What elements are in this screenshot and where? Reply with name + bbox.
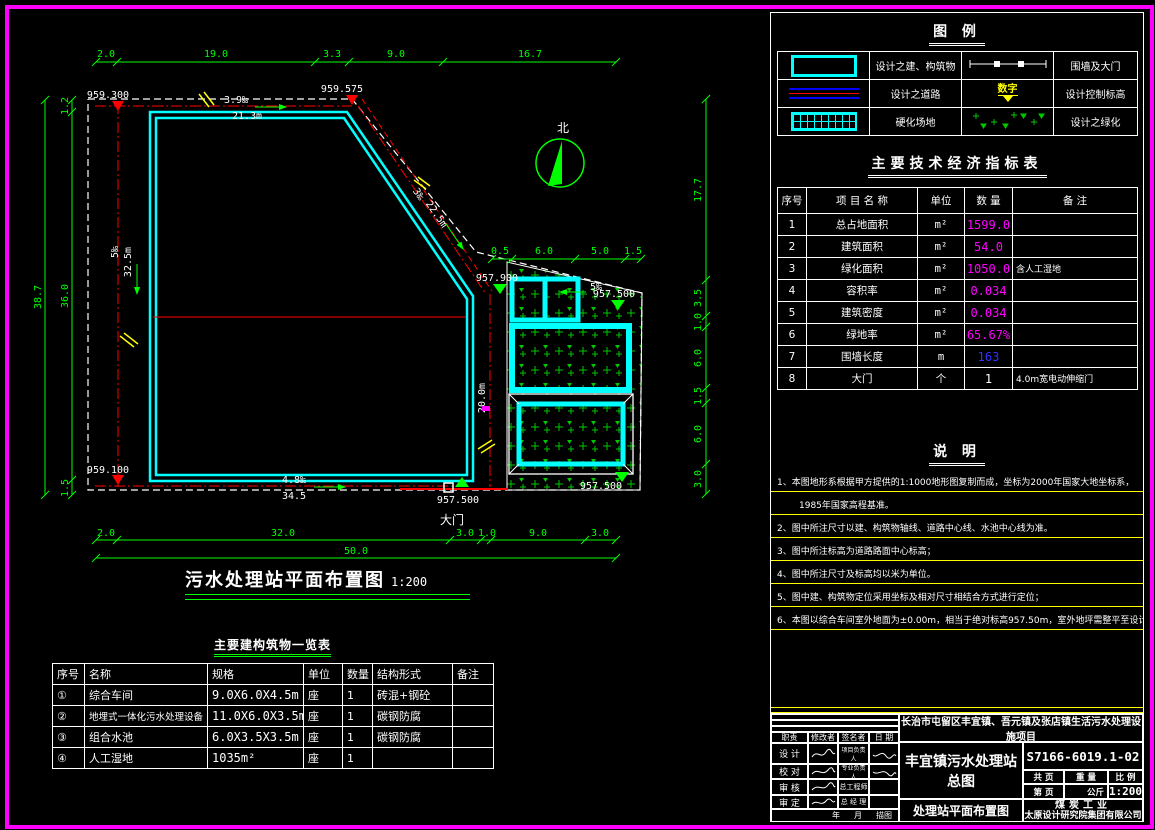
legend-label: 设计之绿化 <box>1054 108 1138 136</box>
notes-list: 1、本图地形系根据甲方提供的1:1000地形图复制而成，坐标为2000年国家大地… <box>771 469 1143 630</box>
note-line: 1、本图地形系根据甲方提供的1:1000地形图复制而成，坐标为2000年国家大地… <box>771 469 1143 492</box>
pages-label: 共 页 <box>1023 770 1064 784</box>
dim-bottom-total: 50.0 <box>344 546 368 557</box>
indicators-header-row: 序号 项 目 名 称 单位 数 量 备 注 <box>778 188 1138 214</box>
signature-empty <box>869 795 899 809</box>
structures-table: 序号 名称 规格 单位 数量 结构形式 备注 ①综合车间 9.0X6.0X4.5… <box>52 663 494 769</box>
dim-bottom-0: 2.0 <box>97 528 115 539</box>
title-block: 职责 修改者 签名者 日 期 设 计 项目负责人 校 对 专业负责人 审 核 总… <box>771 713 1143 822</box>
note-line: 3、图中所注标高为道路路面中心标高； <box>771 538 1143 561</box>
north-compass <box>536 139 584 187</box>
dim-top-4: 16.7 <box>518 49 542 60</box>
signature <box>869 764 899 779</box>
table-row: 2建筑面积m²54.0 <box>778 236 1138 258</box>
table-row: 6绿地率m²65.67% <box>778 324 1138 346</box>
role-label: 专业负责人 <box>838 764 869 779</box>
project-name: 长治市屯留区丰宜镇、吾元镇及张店镇生活污水处理设施项目 <box>899 714 1143 742</box>
dim-left-1: 36.0 <box>60 284 71 308</box>
legend-row: 设计之道路 数字 设计控制标高 <box>778 80 1138 108</box>
legend-table: 设计之建、构筑物 围墙及大门 设计之道路 数 <box>777 51 1138 136</box>
dim-inner-2: 5.0 <box>591 246 609 257</box>
col-unit: 单位 <box>304 664 343 685</box>
hardened-grid-symbol <box>791 112 857 131</box>
table-row: 1总占地面积m²1599.0 <box>778 214 1138 236</box>
col-name: 名称 <box>85 664 208 685</box>
gate-post <box>444 483 453 492</box>
dim-bottom-1: 32.0 <box>271 528 295 539</box>
top-slope-label: 3.9‰ <box>224 95 249 106</box>
dim-bottom-2: 3.0 <box>456 528 474 539</box>
table-row: 8大门个14.0m宽电动伸缩门 <box>778 368 1138 390</box>
left-length-label: 32.5m <box>123 247 134 277</box>
elevation-marker-symbol: 数字 <box>963 85 1052 102</box>
indicators-table: 序号 项 目 名 称 单位 数 量 备 注 1总占地面积m²1599.0 2建筑… <box>777 187 1138 390</box>
drawing-title: 丰宜镇污水处理站 总图 <box>899 742 1023 799</box>
signature <box>808 779 838 795</box>
dim-inner-0: 0.5 <box>491 246 509 257</box>
legend-label: 设计之道路 <box>870 80 962 108</box>
dim-top-1: 19.0 <box>204 49 228 60</box>
scale-label: 比 例 <box>1108 770 1143 784</box>
dim-right-5: 6.0 <box>693 425 704 443</box>
scale-value: 1:200 <box>1108 784 1143 799</box>
sig-header: 职责 <box>771 732 808 743</box>
date-row: 年 月 描图 <box>771 809 899 822</box>
table-row: ③组合水池 6.0X3.5X3.5m座 1碳钢防腐 <box>53 727 494 748</box>
legend-section-title: 图 例 <box>771 21 1143 46</box>
structures-table-title: 主要建构筑物一览表 <box>214 636 331 657</box>
dim-right-6: 3.0 <box>693 470 704 488</box>
diag-slope-arrow <box>446 224 463 249</box>
col-no: 序号 <box>53 664 85 685</box>
page-label: 第 页 <box>1023 784 1064 799</box>
drawing-number: S7166-6019.1-02 <box>1023 742 1143 770</box>
dim-top-2: 3.3 <box>323 49 341 60</box>
note-line: 2、图中所注尺寸以建、构筑物轴线、道路中心线、水池中心线为准。 <box>771 515 1143 538</box>
signature-empty <box>869 779 899 795</box>
signature <box>808 764 838 779</box>
dim-bottom-4: 9.0 <box>529 528 547 539</box>
signature <box>808 743 838 764</box>
elev-bottom-left: 959.100 <box>87 465 129 476</box>
elev-mid: 957.900 <box>476 273 518 284</box>
table-row: 4容积率m²0.034 <box>778 280 1138 302</box>
table-row: ④人工湿地 1035m²座 1 <box>53 748 494 769</box>
site-boundary-inner <box>156 118 467 475</box>
table-row: ①综合车间 9.0X6.0X4.5m座 1砖混+钢砼 <box>53 685 494 706</box>
gate-label: 大门 <box>440 512 464 527</box>
north-label: 北 <box>557 121 569 135</box>
role-label: 项目负责人 <box>838 743 869 764</box>
legend-label: 硬化场地 <box>870 108 962 136</box>
table-row: ②地埋式一体化污水处理设备 11.0X6.0X3.5m座 1碳钢防腐 <box>53 706 494 727</box>
plan-title-block: 污水处理站平面布置图1:200 <box>185 566 485 600</box>
dim-inner-1: 6.0 <box>535 246 553 257</box>
structures-header-row: 序号 名称 规格 单位 数量 结构形式 备注 <box>53 664 494 685</box>
indicators-section-title: 主要技术经济指标表 <box>771 153 1143 178</box>
col-spec: 规格 <box>208 664 304 685</box>
dim-top-0: 2.0 <box>97 49 115 60</box>
site-boundary-outer <box>150 112 473 481</box>
structures-table-section: 主要建构筑物一览表 序号 名称 规格 单位 数量 结构形式 备注 ①综合车间 9… <box>52 636 494 769</box>
sig-header: 修改者 <box>808 732 838 743</box>
role-label: 审 核 <box>771 779 808 795</box>
col-note: 备注 <box>453 664 494 685</box>
role-label: 总工程师 <box>838 779 869 795</box>
wall-gate-symbol <box>968 57 1048 71</box>
dim-bottom-3: 1.0 <box>478 528 496 539</box>
sig-header: 日 期 <box>869 732 899 743</box>
signature <box>808 795 838 809</box>
dim-right-3: 6.0 <box>693 349 704 367</box>
dim-left-total: 38.7 <box>33 285 44 309</box>
role-label: 审 定 <box>771 795 808 809</box>
sig-header: 签名者 <box>838 732 869 743</box>
dim-left-2: 1.5 <box>60 479 71 497</box>
control-elevation-marks <box>120 92 495 453</box>
dim-top-3: 9.0 <box>387 49 405 60</box>
table-row: 3绿化面积m²1050.0含人工湿地 <box>778 258 1138 280</box>
diag-slope-label: 3‰ <box>410 186 426 203</box>
right-panel: 图 例 设计之建、构筑物 围墙及大门 <box>770 12 1144 822</box>
table-row: 5建筑密度m²0.034 <box>778 302 1138 324</box>
role-label: 设 计 <box>771 743 808 764</box>
dim-left-0: 1.2 <box>60 97 71 115</box>
dim-inner-3: 1.5 <box>624 246 642 257</box>
dim-right-2: 1.0 <box>693 313 704 331</box>
company: 煤炭工业 太原设计研究院集团有限公司 <box>1023 799 1143 822</box>
dim-right-1: 3.5 <box>693 289 704 307</box>
dim-bottom-5: 3.0 <box>591 528 609 539</box>
role-label: 校 对 <box>771 764 808 779</box>
plan-title: 污水处理站平面布置图 <box>185 570 385 591</box>
elev-bottom-right: 957.500 <box>580 481 622 492</box>
greenery-dots-symbol <box>967 110 1049 130</box>
dim-right-4: 1.5 <box>693 387 704 405</box>
road-lines-symbol <box>789 88 859 99</box>
legend-row: 硬化场地 设计之绿化 <box>778 108 1138 136</box>
legend-label: 设计之建、构筑物 <box>870 52 962 80</box>
legend-row: 设计之建、构筑物 围墙及大门 <box>778 52 1138 80</box>
bottom-slope-label: 4.8‰ <box>282 475 307 486</box>
plan-scale: 1:200 <box>391 575 427 589</box>
left-slope-label: 5‰ <box>110 245 121 258</box>
col-structure: 结构形式 <box>373 664 453 685</box>
role-label: 总 经 理 <box>838 795 869 809</box>
note-line: 4、图中所注尺寸及标高均以米为单位。 <box>771 561 1143 584</box>
notes-section-title: 说 明 <box>771 441 1143 466</box>
elev-top-left: 959.300 <box>87 90 129 101</box>
legend-label: 设计控制标高 <box>1054 80 1138 108</box>
table-row: 7围墙长度m163 <box>778 346 1138 368</box>
note-line: 1985年国家高程基准。 <box>771 492 1143 515</box>
top-length-label: 21.3m <box>232 111 262 122</box>
legend-label: 围墙及大门 <box>1054 52 1138 80</box>
dim-right-0: 17.7 <box>693 178 704 202</box>
signature <box>869 743 899 764</box>
elev-top-right: 959.575 <box>321 84 363 95</box>
survey-tick <box>482 406 490 411</box>
right-slope-label: 5‰ <box>590 282 603 293</box>
bottom-length-label: 34.5 <box>282 491 306 502</box>
kg-label: 公斤 <box>1064 784 1108 799</box>
col-qty: 数量 <box>343 664 373 685</box>
sheet-name: 处理站平面布置图 <box>899 799 1023 822</box>
weight-label: 重 量 <box>1064 770 1108 784</box>
plan-title-underline <box>185 594 470 600</box>
note-line: 6、本图以综合车间室外地面为±0.00m，相当于绝对标高957.50m，室外地坪… <box>771 607 1143 630</box>
building-outline-symbol <box>791 55 857 77</box>
elev-gate: 957.500 <box>437 495 479 506</box>
note-line: 5、图中建、构筑物定位采用坐标及相对尺寸相结合方式进行定位； <box>771 584 1143 607</box>
